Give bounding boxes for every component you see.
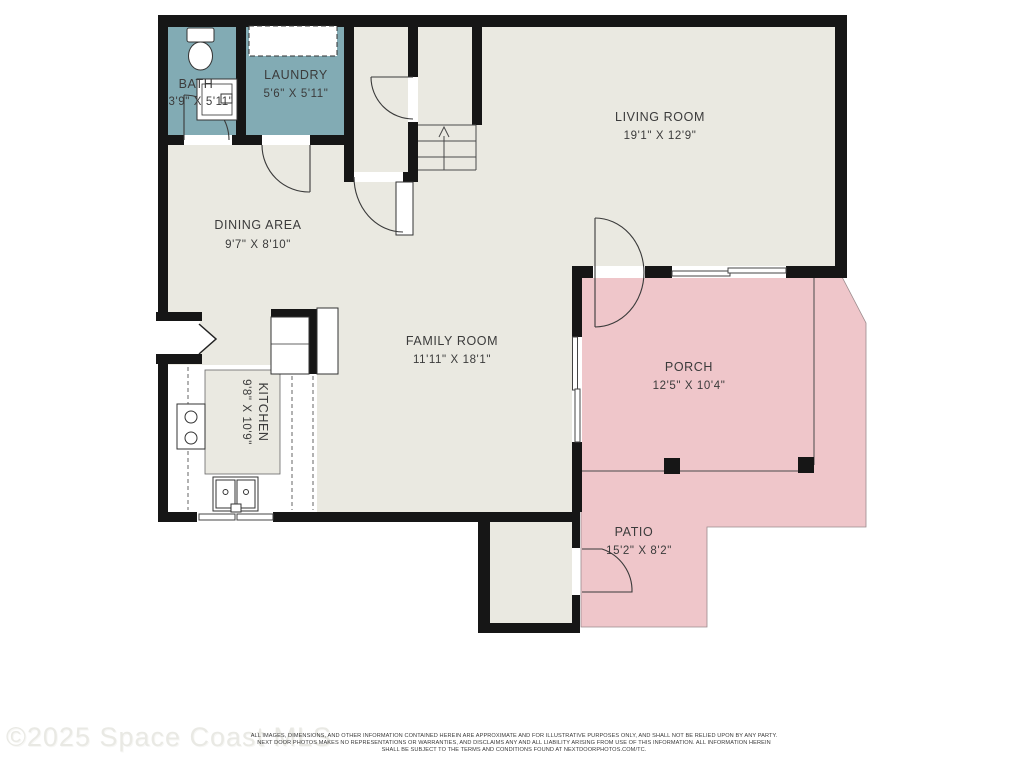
kitchen-pantry: [317, 308, 338, 374]
porch-post: [798, 457, 814, 473]
bath-label: BATH: [179, 77, 214, 91]
dining-area-label: DINING AREA: [214, 218, 301, 232]
hall-door-opening: [408, 77, 418, 122]
entry-opening: [156, 321, 200, 354]
laundry-door-opening: [262, 135, 310, 145]
stove-burner: [185, 432, 197, 444]
patio-label: PATIO: [615, 525, 654, 539]
toilet-tank: [187, 28, 214, 42]
disclaimer-line-1: ALL IMAGES, DIMENSIONS, AND OTHER INFORM…: [251, 733, 778, 739]
wall-family-porch: [572, 442, 582, 512]
living-room-label: LIVING ROOM: [615, 110, 705, 124]
wall-porch-top: [645, 266, 672, 278]
wall-bath-bottom: [232, 135, 262, 145]
porch-door-opening: [593, 266, 645, 278]
living-room-dims: 19'1" X 12'9": [624, 130, 697, 142]
dining-door-leaf: [396, 182, 413, 235]
dining-area-dims: 9'7" X 8'10": [225, 239, 291, 251]
wall-kitchen-stub: [309, 309, 317, 374]
bath-door-opening: [184, 135, 232, 145]
kitchen-cabinet: [271, 317, 309, 374]
floor-plan-image: LIVING ROOM 19'1" X 12'9" LAUNDRY 5'6" X…: [0, 0, 1024, 768]
porch-label: PORCH: [665, 360, 713, 374]
wall-hall-living: [408, 122, 418, 172]
kitchen-label: KITCHEN: [256, 382, 270, 441]
wall-left-upper: [158, 15, 168, 320]
floor-plan-page: LIVING ROOM 19'1" X 12'9" LAUNDRY 5'6" X…: [0, 0, 1024, 768]
bath-dims: 3'9" X 5'11": [169, 96, 234, 108]
washer-dryer: [249, 26, 337, 56]
family-room-dims: 11'11" X 18'1": [413, 354, 491, 366]
patio-dims: 15'2" X 8'2": [606, 545, 672, 557]
disclaimer-line-2: NEXT DOOR PHOTOS MAKES NO REPRESENTATION…: [257, 740, 771, 746]
toilet-bowl: [189, 42, 213, 70]
wall-laundry-hall: [344, 24, 354, 182]
wall-bath-bottom: [168, 135, 184, 145]
wall-top: [158, 15, 847, 27]
wall-stair-closet: [472, 15, 482, 125]
wall-left-lower: [158, 355, 168, 522]
wall-right: [835, 15, 847, 278]
wall-extension-left: [478, 512, 490, 633]
laundry-dims: 5'6" X 5'11": [264, 88, 329, 100]
porch-dims: 12'5" X 10'4": [653, 380, 726, 392]
family-room-label: FAMILY ROOM: [406, 334, 498, 348]
wall-porch-top: [786, 266, 835, 278]
laundry-label: LAUNDRY: [264, 68, 328, 82]
wall-hall-living: [408, 27, 418, 77]
floor-extension: [483, 517, 577, 628]
wall-extension-bottom: [478, 623, 580, 633]
patio-door-opening: [572, 548, 580, 595]
porch-post: [664, 458, 680, 474]
stove-burner: [185, 411, 197, 423]
wall-extension-right: [572, 512, 580, 548]
wall-entry-niche-top: [156, 312, 202, 321]
disclaimer-line-3: SHALL BE SUBJECT TO THE TERMS AND CONDIT…: [382, 747, 647, 753]
sink-faucet: [231, 504, 241, 512]
wall-family-porch: [572, 266, 582, 337]
wall-hall-jamb: [403, 172, 418, 182]
porch-patio-area: [581, 273, 866, 627]
kitchen-dims: 9'8" X 10'9": [240, 379, 252, 445]
wall-laundry-bottom: [310, 135, 344, 145]
wall-entry-niche-bottom: [156, 354, 202, 364]
dining-door-opening: [354, 172, 403, 182]
